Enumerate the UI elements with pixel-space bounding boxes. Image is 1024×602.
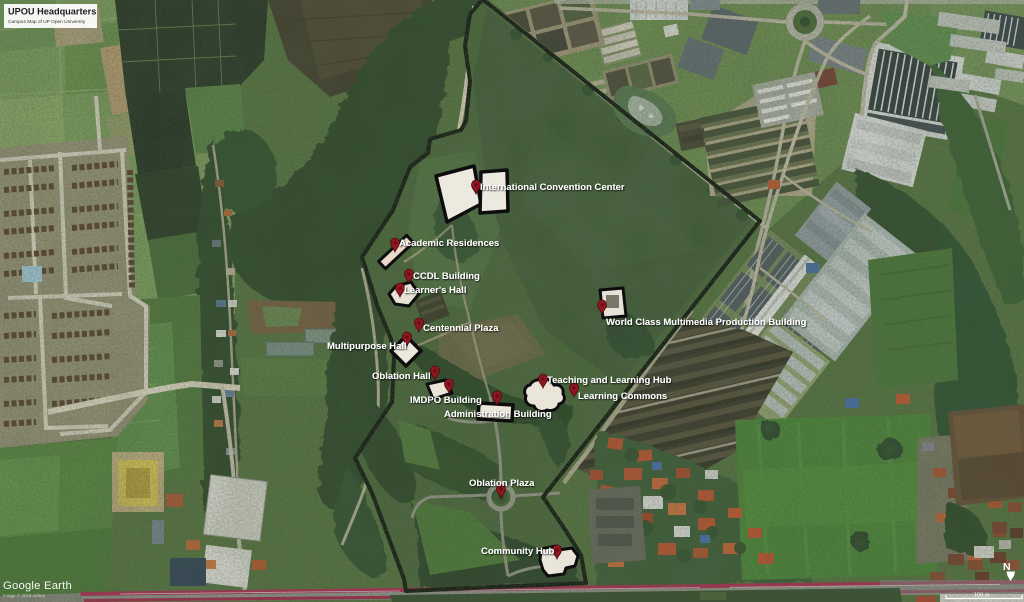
svg-text:Multipurpose Hall: Multipurpose Hall [327, 341, 407, 352]
svg-text:Learning Commons: Learning Commons [578, 391, 667, 402]
svg-text:100 m: 100 m [974, 593, 990, 599]
svg-text:World Class Multimedia Product: World Class Multimedia Production Buildi… [606, 317, 807, 328]
svg-text:UPOU Headquarters: UPOU Headquarters [8, 7, 96, 17]
svg-text:N: N [1003, 561, 1011, 573]
svg-text:Learner's Hall: Learner's Hall [404, 285, 466, 296]
svg-text:Administration Building: Administration Building [444, 409, 552, 420]
svg-text:International Convention Cente: International Convention Center [480, 182, 625, 193]
svg-text:Campus Map of UP Open Universi: Campus Map of UP Open University [8, 19, 86, 25]
svg-text:Oblation Plaza: Oblation Plaza [469, 478, 535, 489]
svg-text:Google Earth: Google Earth [3, 580, 72, 592]
svg-text:IMDPO Building: IMDPO Building [410, 395, 482, 406]
svg-text:Image © 2019 Airbus: Image © 2019 Airbus [3, 592, 46, 598]
svg-text:CCDL Building: CCDL Building [413, 271, 480, 282]
svg-text:Oblation Hall: Oblation Hall [372, 371, 431, 382]
svg-text:Teaching and Learning Hub: Teaching and Learning Hub [547, 375, 672, 386]
svg-text:Community Hub: Community Hub [481, 546, 555, 557]
svg-text:Academic Residences: Academic Residences [399, 238, 499, 249]
svg-text:Centennial Plaza: Centennial Plaza [423, 323, 499, 334]
